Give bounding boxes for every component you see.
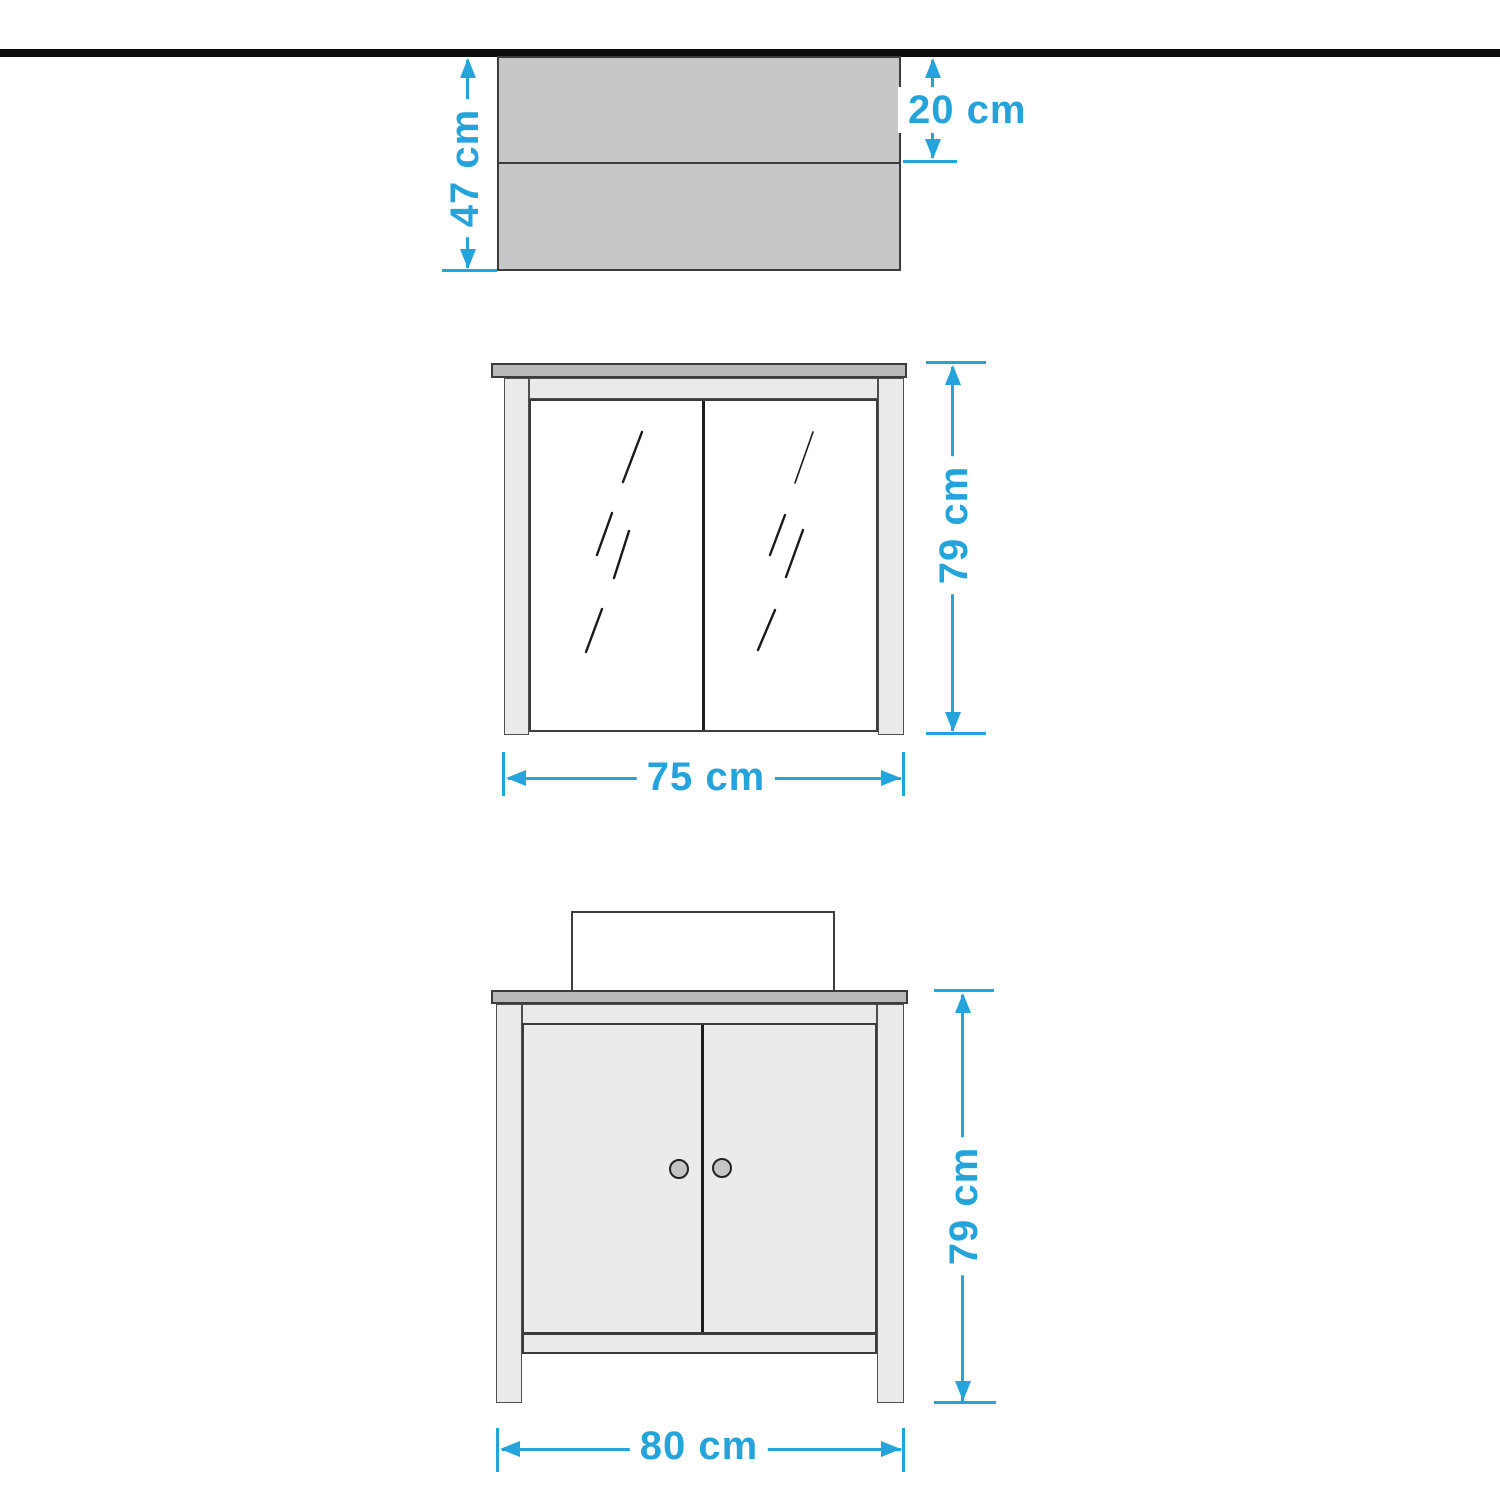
dimension-tick [502, 752, 505, 796]
dim-label: 75 cm [637, 754, 775, 800]
mirror-left-post [504, 378, 529, 735]
mirror-shine-lines [529, 399, 878, 732]
shine-line [586, 609, 602, 652]
vanity-top-rail [522, 1004, 877, 1024]
mirror-header-rail [529, 378, 878, 399]
dimension-tick [902, 752, 905, 796]
dimension-tick [496, 1428, 499, 1472]
shine-line [758, 610, 775, 650]
vanity-doors [522, 1023, 877, 1334]
vanity-countertop [491, 990, 908, 1004]
shine-line [597, 513, 612, 555]
vanity-knob-right [712, 1158, 732, 1178]
dim-label: 79 cm [941, 1137, 987, 1275]
vanity-left-leg [496, 1004, 522, 1403]
dim-label: 20 cm [898, 87, 1036, 133]
shine-line [614, 531, 629, 578]
dimension-tick [934, 989, 994, 992]
shine-line [770, 515, 785, 555]
shine-line [786, 530, 803, 577]
vanity-door-divider [701, 1025, 704, 1332]
dim-label: 79 cm [931, 456, 977, 594]
arrow-down-icon [945, 712, 961, 732]
vanity-bottom-rail [522, 1333, 877, 1354]
dimension-tick [926, 361, 986, 364]
dimension-diagram: 47 cm 20 cm [0, 0, 1500, 1500]
arrow-right-icon [881, 1441, 901, 1457]
shine-line [795, 432, 813, 483]
dimension-tick [903, 160, 957, 163]
vanity-right-leg [877, 1004, 904, 1403]
dimension-tick [926, 732, 986, 735]
dim-label: 47 cm [442, 99, 488, 237]
vanity-basin [571, 911, 835, 993]
vanity-knob-left [669, 1159, 689, 1179]
shine-line [623, 432, 642, 482]
mirror-top-board [491, 363, 907, 378]
arrow-right-icon [881, 770, 901, 786]
dimension-tick [934, 1401, 996, 1404]
mirror-right-post [878, 378, 904, 735]
dimension-tick [442, 269, 497, 272]
arrow-down-icon [925, 139, 941, 159]
dimension-tick [902, 1428, 905, 1472]
dim-label: 80 cm [630, 1423, 768, 1469]
arrow-down-icon [955, 1381, 971, 1401]
arrow-down-icon [460, 249, 476, 269]
topview-split-line [499, 162, 899, 164]
